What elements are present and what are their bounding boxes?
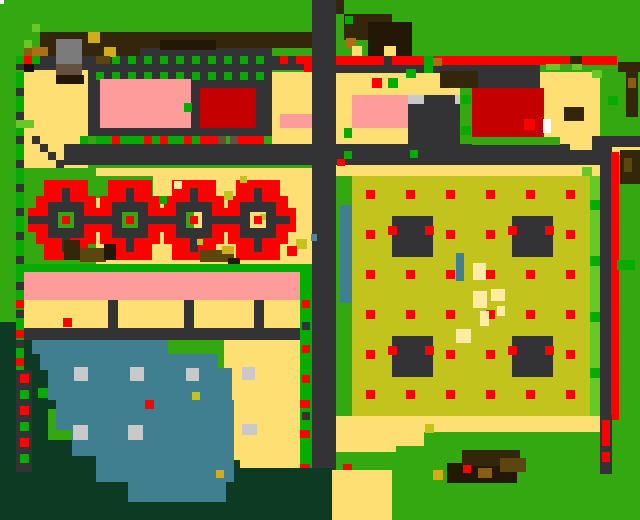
map-dot: [486, 190, 495, 199]
map-dot: [526, 390, 535, 399]
map-tile: [40, 144, 48, 152]
map-dot: [256, 56, 264, 64]
map-tile: [100, 79, 191, 128]
map-tile: [80, 136, 88, 144]
map-tile: [311, 234, 317, 241]
map-tile: [302, 322, 310, 330]
map-tile: [572, 64, 582, 70]
map-tile: [16, 56, 24, 64]
map-tile: [32, 340, 168, 354]
map-tile: [62, 216, 70, 224]
map-tile: [300, 400, 310, 408]
map-dot: [176, 56, 184, 64]
map-tile: [608, 96, 618, 105]
map-tile: [332, 470, 392, 520]
map-dot: [566, 270, 575, 279]
map-dot: [486, 390, 495, 399]
map-tile: [590, 200, 600, 210]
map-tile: [480, 311, 489, 326]
map-tile: [242, 367, 255, 380]
map-tile: [352, 95, 408, 128]
map-tile: [302, 375, 310, 383]
map-dot: [566, 190, 575, 199]
map-tile: [144, 136, 152, 144]
map-zone: [300, 264, 312, 474]
map-tile: [128, 482, 226, 502]
map-dot: [16, 112, 24, 120]
map-tile: [152, 136, 160, 144]
map-tile: [425, 346, 434, 355]
map-tile: [461, 126, 471, 135]
map-tile: [340, 205, 352, 303]
map-tile: [472, 137, 560, 145]
game-map-canvas[interactable]: [0, 0, 640, 520]
map-tile: [184, 103, 192, 112]
map-tile: [74, 367, 88, 381]
map-dot: [446, 270, 455, 279]
map-tile: [197, 239, 203, 245]
map-tile: [300, 430, 310, 438]
map-tile: [120, 136, 144, 144]
map-tile: [88, 32, 100, 43]
map-tile: [32, 24, 40, 32]
map-tile: [73, 425, 88, 440]
map-dot: [16, 256, 24, 264]
map-tile: [200, 136, 218, 144]
map-tile: [344, 128, 352, 138]
map-dot: [366, 270, 375, 279]
map-tile: [20, 406, 29, 415]
map-tile: [48, 152, 56, 160]
map-tile: [546, 64, 560, 70]
map-tile: [425, 226, 434, 235]
map-tile: [24, 56, 32, 64]
map-zone: [408, 104, 460, 144]
map-dot: [566, 310, 575, 319]
map-dot: [366, 310, 375, 319]
map-dot: [486, 270, 495, 279]
map-zone: [64, 144, 600, 165]
map-tile: [230, 136, 238, 144]
map-tile: [186, 368, 199, 381]
map-dot: [208, 56, 216, 64]
map-tile: [32, 136, 40, 144]
map-tile: [617, 260, 635, 270]
map-tile: [280, 114, 312, 128]
map-tile: [545, 346, 554, 355]
map-tile: [238, 136, 264, 144]
map-tile: [96, 136, 112, 144]
map-tile: [302, 300, 310, 308]
map-tile: [392, 216, 433, 257]
map-tile: [128, 425, 143, 440]
map-zone: [224, 336, 312, 460]
map-dot: [446, 350, 455, 359]
map-tile: [240, 176, 247, 183]
map-tile: [20, 438, 29, 447]
map-tile: [56, 75, 84, 84]
map-tile: [424, 56, 433, 73]
map-tile: [63, 318, 72, 327]
map-tile: [352, 46, 362, 56]
map-dot: [256, 72, 264, 80]
map-dot: [566, 390, 575, 399]
map-dot: [486, 230, 495, 239]
map-tile: [545, 226, 554, 235]
map-tile: [38, 388, 48, 398]
map-tile: [408, 95, 424, 104]
map-tile: [473, 263, 486, 280]
map-dot: [144, 56, 152, 64]
map-dot: [406, 190, 415, 199]
map-tile: [410, 150, 418, 158]
map-tile: [96, 456, 234, 482]
map-tile: [16, 310, 24, 318]
map-dot: [446, 390, 455, 399]
map-tile: [570, 56, 582, 64]
map-zone: [611, 152, 619, 420]
map-tile: [126, 216, 134, 224]
map-tile: [570, 126, 592, 150]
map-tile: [497, 306, 505, 316]
map-tile: [232, 468, 332, 520]
map-tile: [160, 40, 216, 50]
map-tile: [463, 465, 471, 473]
map-tile: [16, 120, 34, 128]
map-dot: [16, 184, 24, 192]
map-tile: [602, 452, 610, 462]
map-dot: [112, 56, 120, 64]
map-dot: [446, 190, 455, 199]
map-tile: [388, 226, 397, 235]
map-tile: [16, 358, 24, 366]
map-tile: [56, 64, 82, 75]
map-tile: [192, 136, 200, 144]
map-tile: [388, 78, 398, 88]
map-dot: [240, 72, 248, 80]
map-dot: [192, 56, 200, 64]
map-tile: [228, 258, 240, 264]
map-tile: [64, 240, 80, 260]
map-tile: [20, 422, 29, 431]
map-tile: [168, 136, 184, 144]
map-tile: [224, 191, 233, 200]
map-tile: [16, 330, 24, 338]
map-dot: [446, 310, 455, 319]
map-tile: [590, 312, 600, 322]
map-tile: [145, 400, 154, 409]
map-zone: [24, 272, 304, 300]
map-tile: [388, 346, 397, 355]
map-tile: [192, 392, 200, 400]
map-tile: [24, 64, 34, 72]
map-tile: [24, 40, 32, 48]
map-tile: [16, 300, 24, 308]
map-tile: [112, 136, 120, 144]
map-dot: [224, 56, 232, 64]
map-dot: [160, 56, 168, 64]
map-tile: [543, 119, 551, 133]
map-dot: [446, 230, 455, 239]
map-dot: [486, 350, 495, 359]
map-tile: [80, 248, 106, 262]
map-tile: [590, 256, 600, 266]
map-tile: [560, 64, 572, 70]
map-tile: [184, 136, 192, 144]
map-tile: [491, 289, 505, 301]
map-tile: [32, 56, 40, 64]
map-tile: [296, 239, 307, 249]
map-dot: [406, 310, 415, 319]
map-tile: [32, 47, 48, 56]
map-tile: [24, 47, 32, 56]
map-tile: [108, 300, 118, 328]
map-tile: [344, 151, 352, 159]
map-tile: [190, 216, 198, 224]
map-dot: [406, 270, 415, 279]
map-dot: [526, 310, 535, 319]
map-tile: [184, 300, 194, 328]
map-tile: [384, 46, 396, 56]
map-tile: [336, 0, 344, 14]
map-tile: [461, 95, 471, 104]
map-tile: [296, 56, 304, 64]
map-tile: [512, 216, 553, 257]
map-tile: [433, 58, 442, 66]
map-tile: [337, 159, 345, 166]
map-tile: [564, 107, 584, 121]
map-zone: [24, 328, 310, 340]
map-tile: [384, 56, 392, 65]
map-tile: [592, 70, 602, 78]
map-tile: [392, 336, 433, 377]
map-tile: [345, 16, 353, 24]
map-tile: [508, 346, 517, 355]
map-dot: [208, 72, 216, 80]
map-dot: [566, 350, 575, 359]
map-dot: [366, 390, 375, 399]
map-dot: [406, 390, 415, 399]
map-dot: [16, 208, 24, 216]
map-tile: [618, 62, 640, 72]
map-tile: [222, 246, 234, 254]
map-tile: [72, 430, 234, 456]
map-tile: [624, 158, 632, 172]
map-tile: [130, 367, 144, 381]
map-tile: [304, 56, 312, 72]
map-tile: [425, 424, 434, 433]
map-tile: [628, 78, 636, 88]
map-zone: [352, 176, 590, 416]
map-tile: [20, 390, 29, 399]
map-tile: [433, 470, 443, 480]
map-tile: [254, 216, 262, 224]
map-dot: [366, 190, 375, 199]
map-dot: [366, 230, 375, 239]
map-dot: [526, 190, 535, 199]
map-zone: [272, 72, 312, 148]
map-tile: [159, 196, 167, 204]
map-tile: [96, 56, 110, 64]
map-tile: [216, 470, 224, 478]
map-dot: [566, 230, 575, 239]
map-tile: [174, 181, 182, 189]
map-tile: [590, 368, 600, 378]
map-tile: [0, 0, 4, 4]
map-tile: [473, 291, 487, 308]
map-tile: [287, 246, 297, 256]
map-tile: [56, 39, 82, 64]
map-tile: [524, 119, 535, 130]
map-tile: [478, 468, 492, 478]
map-dot: [128, 56, 136, 64]
map-tile: [440, 71, 478, 88]
map-dot: [16, 136, 24, 144]
map-dot: [16, 232, 24, 240]
map-zone: [424, 95, 455, 104]
map-tile: [406, 69, 416, 78]
map-tile: [456, 329, 471, 343]
map-dot: [16, 160, 24, 168]
map-tile: [302, 412, 310, 420]
map-tile: [20, 374, 29, 383]
map-tile: [582, 167, 592, 176]
map-tile: [254, 300, 264, 328]
map-tile: [16, 282, 24, 290]
map-tile: [20, 454, 29, 463]
map-tile: [200, 88, 256, 128]
map-tile: [160, 136, 168, 144]
map-tile: [602, 420, 610, 446]
map-tile: [218, 136, 226, 144]
map-tile: [500, 458, 526, 472]
map-tile: [512, 336, 553, 377]
map-tile: [372, 78, 382, 88]
map-dot: [526, 270, 535, 279]
map-tile: [456, 253, 464, 281]
map-tile: [508, 226, 517, 235]
map-tile: [302, 345, 310, 353]
map-tile: [280, 56, 288, 64]
map-dot: [224, 72, 232, 80]
map-tile: [16, 340, 24, 348]
map-dot: [16, 88, 24, 96]
map-tile: [104, 244, 116, 260]
map-tile: [56, 160, 64, 168]
map-dot: [240, 56, 248, 64]
map-tile: [242, 424, 257, 435]
map-dot: [366, 350, 375, 359]
map-zone: [590, 176, 600, 416]
map-zone: [16, 264, 312, 272]
map-dot: [192, 72, 200, 80]
